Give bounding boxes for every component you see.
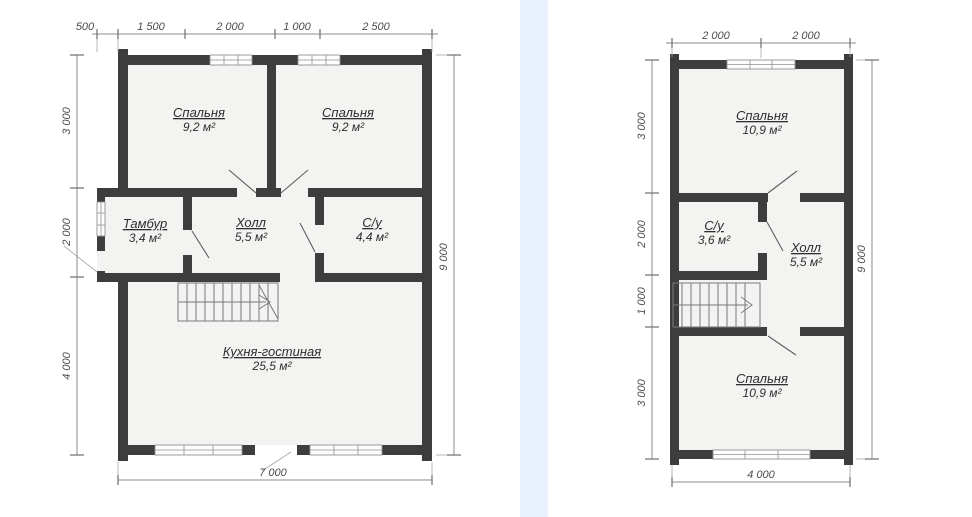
room-area-bedroom-1: 9,2 м² bbox=[183, 120, 216, 134]
dimension-label: 2 500 bbox=[361, 21, 390, 33]
room-label-bathroom: С/у bbox=[704, 218, 725, 233]
dimension-label: 1 000 bbox=[283, 21, 311, 33]
first-floor-plan: 500 1 500 2 000 1 000 2 500 3 000 2 000 … bbox=[61, 21, 461, 485]
entry-door-leader bbox=[64, 246, 97, 272]
dimension-label: 7 000 bbox=[259, 467, 287, 479]
dimension-label: 3 000 bbox=[636, 378, 648, 406]
room-label-kitchen-living: Кухня-гостиная bbox=[223, 344, 321, 359]
dimension-label: 2 000 bbox=[215, 21, 244, 33]
dimension-label: 2 000 bbox=[791, 30, 820, 42]
dimension-label: 2 000 bbox=[701, 30, 730, 42]
floor-plan-drawing: 500 1 500 2 000 1 000 2 500 3 000 2 000 … bbox=[0, 0, 972, 517]
first-floor-rooms-fill bbox=[97, 55, 432, 455]
room-area-bedroom-bottom: 10,9 м² bbox=[743, 386, 783, 400]
window-icon bbox=[97, 202, 105, 236]
window-icon bbox=[727, 60, 795, 69]
room-label-bathroom: С/у bbox=[362, 215, 383, 230]
room-area-bathroom: 3,6 м² bbox=[698, 233, 731, 247]
window-icon bbox=[210, 55, 252, 65]
room-label-hall: Холл bbox=[235, 215, 267, 230]
floor-plan-page: 500 1 500 2 000 1 000 2 500 3 000 2 000 … bbox=[0, 0, 972, 517]
dimension-label: 9 000 bbox=[438, 242, 450, 270]
room-label-vestibule: Тамбур bbox=[123, 216, 168, 231]
window-icon bbox=[713, 450, 810, 459]
window-icon bbox=[155, 445, 242, 455]
door-opening bbox=[255, 445, 297, 455]
dimension-label: 3 000 bbox=[61, 106, 73, 134]
dimension-label: 1 000 bbox=[636, 286, 648, 314]
dimension-label: 2 000 bbox=[636, 219, 648, 248]
room-label-bedroom-top: Спальня bbox=[736, 108, 788, 123]
room-area-bedroom-2: 9,2 м² bbox=[332, 120, 365, 134]
room-area-bedroom-top: 10,9 м² bbox=[743, 123, 783, 137]
dimension-label: 3 000 bbox=[636, 111, 648, 139]
room-area-kitchen-living: 25,5 м² bbox=[252, 359, 293, 373]
room-label-bedroom-bottom: Спальня bbox=[736, 371, 788, 386]
room-label-bedroom-2: Спальня bbox=[322, 105, 374, 120]
dimension-label: 2 000 bbox=[61, 217, 73, 246]
window-icon bbox=[298, 55, 340, 65]
dimension-label: 9 000 bbox=[856, 244, 868, 272]
room-area-hall: 5,5 м² bbox=[235, 230, 268, 244]
dimension-label: 500 bbox=[76, 21, 95, 33]
dimension-label: 4 000 bbox=[61, 351, 73, 379]
dimension-label: 1 500 bbox=[137, 21, 165, 33]
room-area-hall: 5,5 м² bbox=[790, 255, 823, 269]
window-icon bbox=[310, 445, 382, 455]
second-floor-plan: 2 000 2 000 3 000 2 000 1 000 3 000 9 00… bbox=[636, 30, 879, 487]
dimension-label: 4 000 bbox=[747, 469, 775, 481]
room-label-bedroom-1: Спальня bbox=[173, 105, 225, 120]
room-area-bathroom: 4,4 м² bbox=[356, 230, 389, 244]
room-area-vestibule: 3,4 м² bbox=[129, 231, 162, 245]
room-label-hall: Холл bbox=[790, 240, 822, 255]
